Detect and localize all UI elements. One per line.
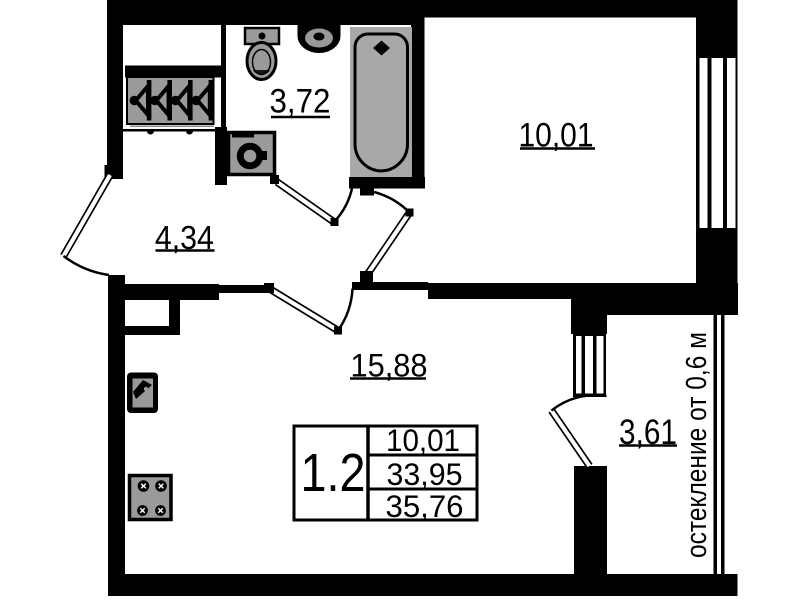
svg-text:3,72: 3,72 (270, 83, 331, 121)
svg-text:33,95: 33,95 (387, 456, 463, 492)
svg-text:1.2: 1.2 (301, 443, 366, 503)
svg-text:остекление от 0,6 м: остекление от 0,6 м (681, 332, 713, 558)
svg-text:10,01: 10,01 (386, 422, 460, 458)
svg-text:35,76: 35,76 (386, 488, 464, 524)
